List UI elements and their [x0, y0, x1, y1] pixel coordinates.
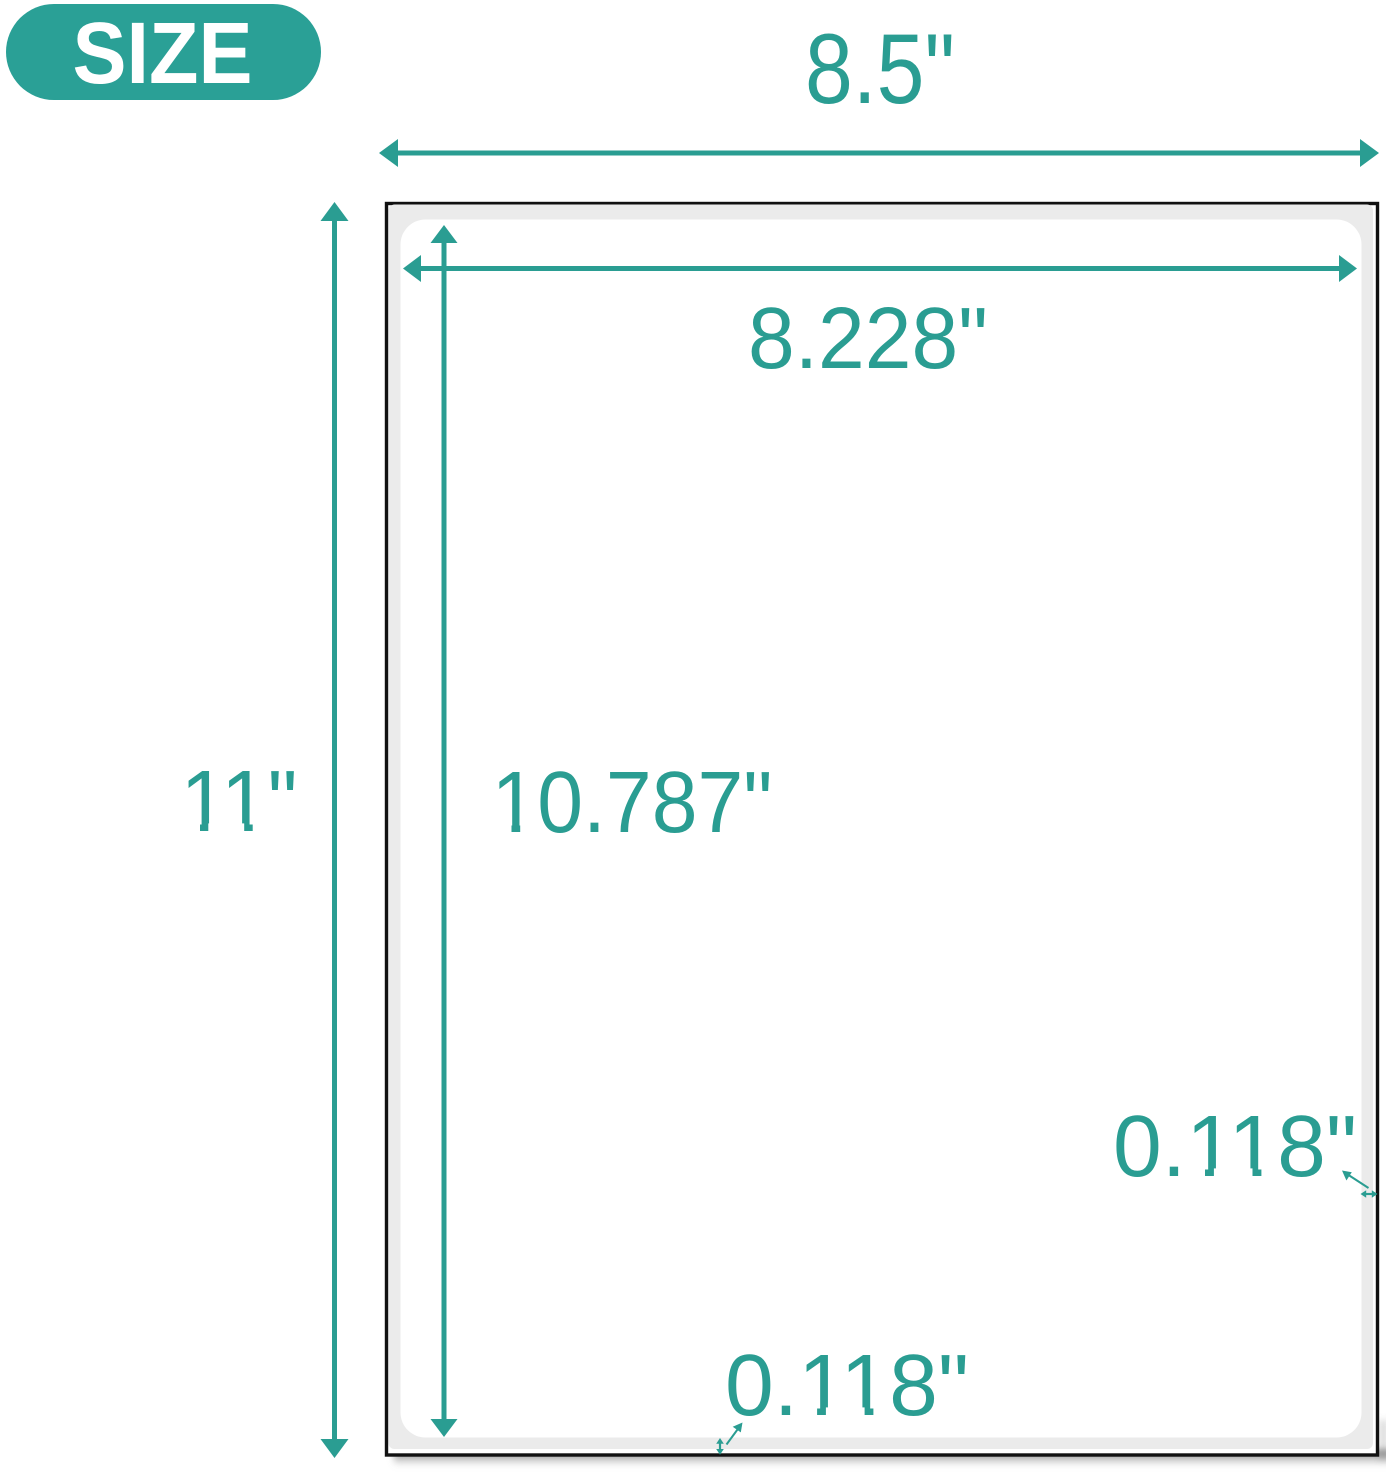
svg-text:SIZE: SIZE: [73, 5, 253, 102]
svg-text:11": 11": [181, 753, 298, 850]
svg-text:8.5": 8.5": [805, 13, 955, 124]
svg-text:0.118": 0.118": [1113, 1098, 1357, 1195]
svg-text:8.228": 8.228": [748, 290, 988, 387]
svg-text:0.118": 0.118": [725, 1337, 969, 1434]
svg-text:10.787": 10.787": [492, 754, 773, 851]
